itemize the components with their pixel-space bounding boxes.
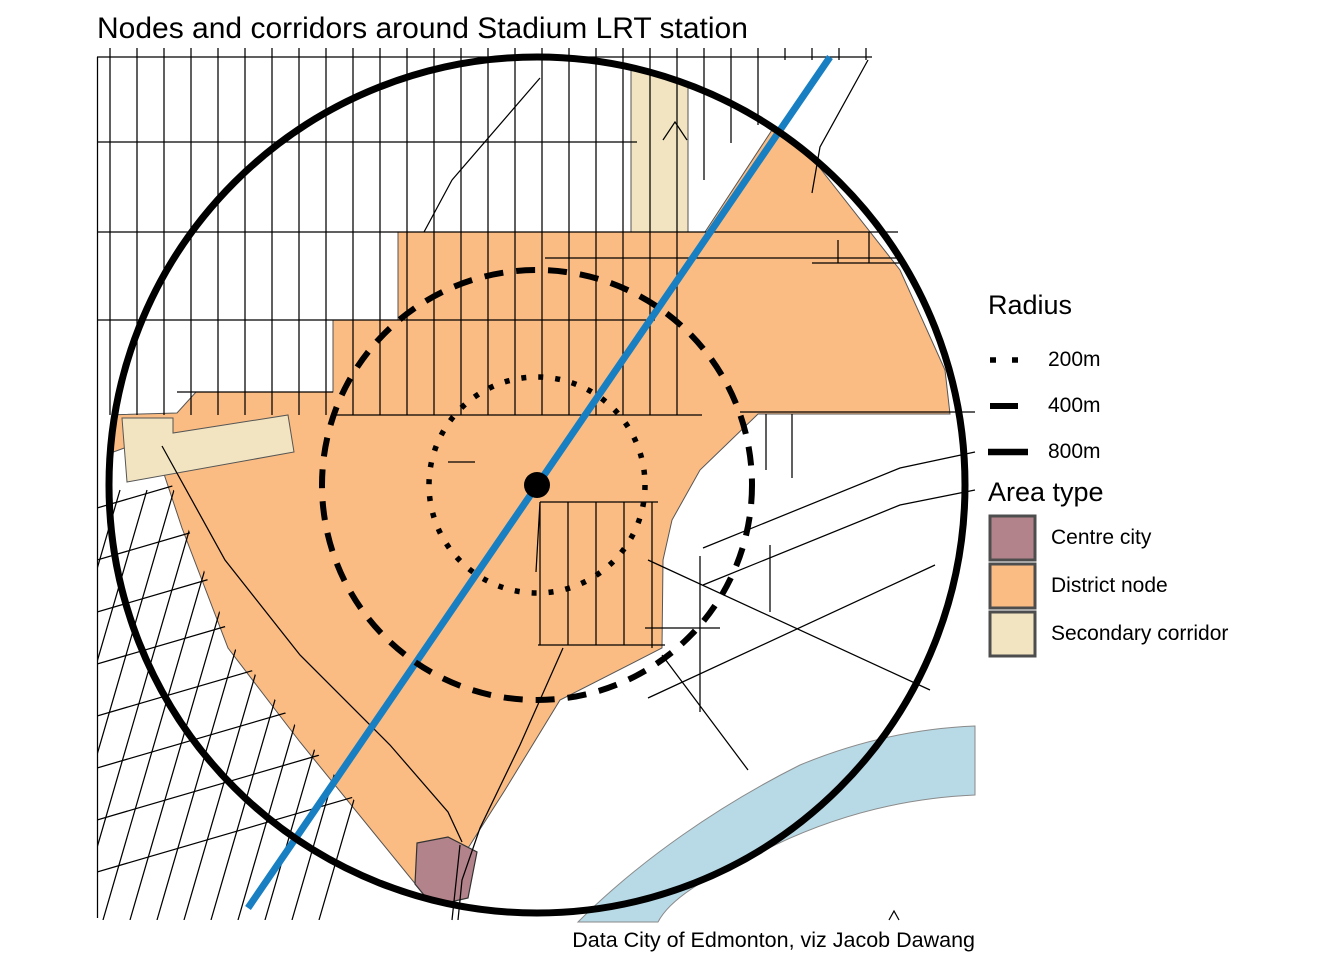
- secondary-corridor-swatch: [988, 610, 1037, 658]
- legend-item-centre-city: Centre city: [988, 514, 1344, 562]
- legend-label-200m: 200m: [1048, 348, 1101, 372]
- data-credit-caption: Data City of Edmonton, viz Jacob Dawang: [455, 928, 975, 953]
- legend-label-district-node: District node: [1051, 574, 1168, 598]
- area-type-legend-heading: Area type: [988, 477, 1344, 508]
- solid-line-key: [988, 447, 1030, 457]
- secondary-corridor-area-north: [631, 68, 688, 232]
- centre-city-swatch: [988, 514, 1037, 562]
- legend-item-secondary-corridor: Secondary corridor: [988, 610, 1344, 658]
- legend-item-district-node: District node: [988, 562, 1344, 610]
- legend-label-secondary-corridor: Secondary corridor: [1051, 622, 1228, 646]
- district-node-swatch: [988, 562, 1037, 610]
- page-title: Nodes and corridors around Stadium LRT s…: [97, 12, 748, 46]
- radius-legend-heading: Radius: [988, 290, 1344, 321]
- dashed-line-key: [988, 401, 1030, 411]
- legend-label-400m: 400m: [1048, 394, 1101, 418]
- river: [578, 726, 975, 922]
- legend-item-200m: 200m: [988, 337, 1344, 383]
- caret-mark-south: [889, 911, 899, 920]
- legend-label-centre-city: Centre city: [1051, 526, 1151, 550]
- legend-item-400m: 400m: [988, 383, 1344, 429]
- legend-item-800m: 800m: [988, 429, 1344, 475]
- legend: Radius 200m 400m 800m Area type Centre c…: [988, 290, 1344, 658]
- dotted-line-key: [988, 355, 1030, 365]
- station-dot: [524, 472, 550, 498]
- legend-label-800m: 800m: [1048, 440, 1101, 464]
